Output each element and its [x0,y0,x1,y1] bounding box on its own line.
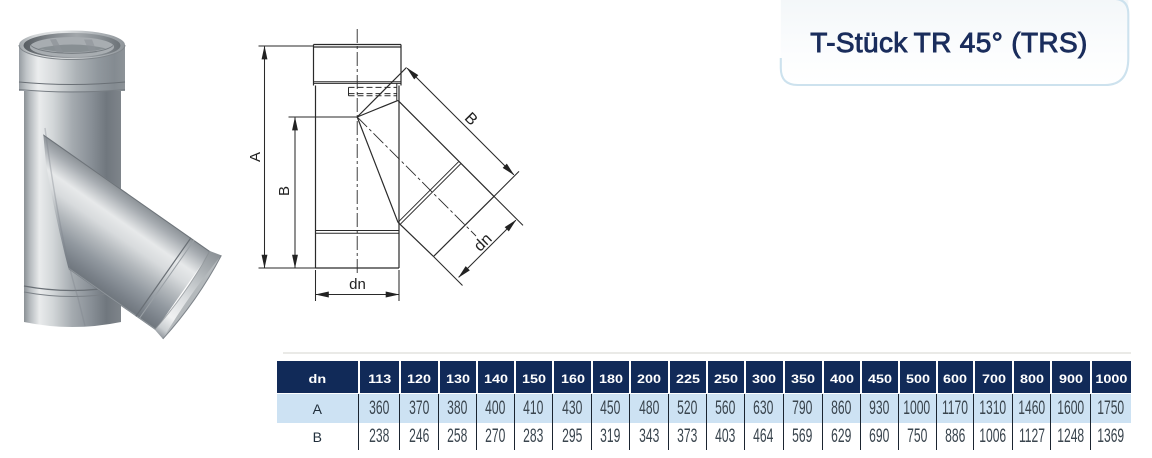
svg-text:dn: dn [349,276,366,293]
svg-text:B: B [276,186,293,196]
svg-text:B: B [461,110,481,130]
svg-text:A: A [247,152,264,162]
